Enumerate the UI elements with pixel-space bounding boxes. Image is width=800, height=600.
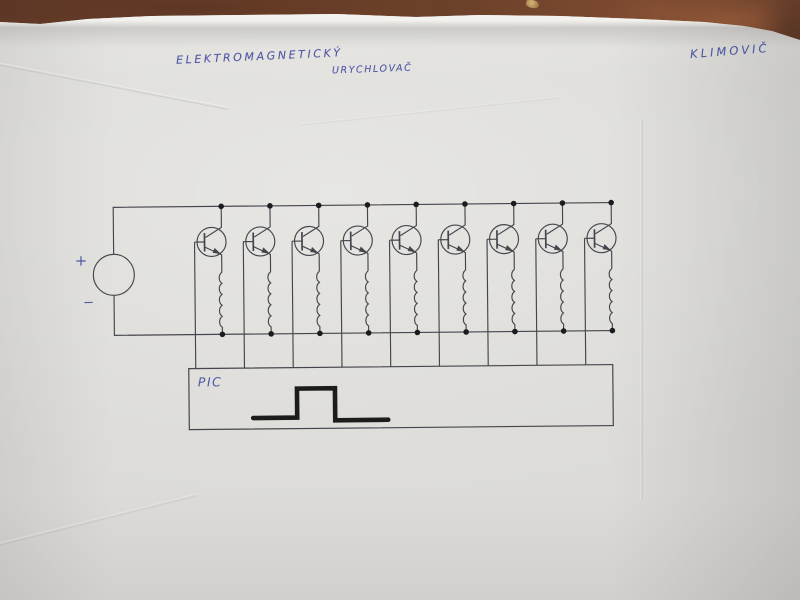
coil-symbol xyxy=(317,271,320,333)
base-drive-wire xyxy=(487,239,488,365)
coil-symbol xyxy=(463,270,466,332)
coil-symbol xyxy=(414,270,417,332)
junction-dot xyxy=(366,330,372,336)
transistor-stage xyxy=(243,203,276,368)
transistor-stage xyxy=(340,202,373,367)
junction-dot xyxy=(220,331,226,337)
plus-label: + xyxy=(75,252,88,270)
junction-dot xyxy=(268,331,274,337)
coil-symbol xyxy=(268,272,271,334)
junction-dot xyxy=(317,331,323,337)
circuit-schematic: + − PIC xyxy=(0,0,800,600)
junction-dot xyxy=(512,329,518,335)
collector-wire xyxy=(205,206,221,237)
emitter-wire xyxy=(448,244,465,270)
emitter-wire xyxy=(351,245,368,271)
junction-dot xyxy=(561,328,567,334)
emitter-arrow xyxy=(603,244,612,250)
junction-dot xyxy=(365,202,371,208)
stages xyxy=(194,200,617,369)
emitter-arrow xyxy=(213,248,222,254)
emitter-wire xyxy=(497,244,514,270)
junction-dot xyxy=(462,201,468,207)
photo-of-schematic: ELEKTROMAGNETICKÝ URYCHLOVAČ KLIMOVIČ + … xyxy=(0,0,800,600)
transistor-stage xyxy=(292,203,325,368)
emitter-arrow xyxy=(554,245,563,251)
transistor-stage xyxy=(389,202,422,367)
junction-dot xyxy=(608,200,614,206)
emitter-wire xyxy=(546,244,563,270)
junction-dot xyxy=(415,330,421,336)
junction-dot xyxy=(560,200,566,206)
emitter-arrow xyxy=(408,246,417,252)
emitter-wire xyxy=(400,245,417,271)
base-drive-wire xyxy=(390,240,391,366)
collector-wire xyxy=(449,204,465,235)
junction-dot xyxy=(267,203,273,209)
coil-symbol xyxy=(365,271,368,333)
collector-wire xyxy=(546,203,562,234)
paper-sheet: ELEKTROMAGNETICKÝ URYCHLOVAČ KLIMOVIČ + … xyxy=(0,0,800,600)
collector-wire xyxy=(254,206,270,237)
base-drive-wire xyxy=(438,240,439,366)
voltage-source xyxy=(93,254,134,295)
emitter-arrow xyxy=(456,245,465,251)
base-drive-wire xyxy=(536,239,537,365)
junction-dot xyxy=(316,203,322,209)
junction-dot xyxy=(463,329,469,335)
coil-symbol xyxy=(219,272,222,334)
emitter-wire xyxy=(253,246,270,272)
bottom-rail xyxy=(114,291,612,336)
emitter-arrow xyxy=(261,247,270,253)
transistor-stage xyxy=(535,200,568,365)
collector-wire xyxy=(595,203,611,234)
collector-wire xyxy=(351,205,367,236)
pulse-waveform xyxy=(253,388,388,421)
collector-wire xyxy=(303,205,319,236)
base-drive-wire xyxy=(341,241,342,367)
junction-dot xyxy=(413,202,419,208)
base-drive-wire xyxy=(292,241,293,367)
collector-wire xyxy=(400,204,416,235)
minus-label: − xyxy=(83,296,94,311)
emitter-wire xyxy=(205,247,222,273)
pic-label: PIC xyxy=(198,374,223,389)
emitter-arrow xyxy=(310,247,319,253)
collector-wire xyxy=(498,204,514,235)
junction-dot xyxy=(610,328,616,334)
base-drive-wire xyxy=(585,238,586,364)
emitter-wire xyxy=(595,243,612,269)
coil-symbol xyxy=(512,270,515,332)
transistor-stage xyxy=(487,201,520,366)
emitter-wire xyxy=(302,246,319,272)
emitter-arrow xyxy=(505,245,514,251)
transistor-stage xyxy=(438,201,471,366)
transistor-stage xyxy=(194,203,227,368)
base-drive-wire xyxy=(243,242,244,368)
transistor-stage xyxy=(584,200,617,365)
coil-symbol xyxy=(609,269,612,331)
top-rail xyxy=(113,203,611,255)
junction-dot xyxy=(511,201,517,207)
emitter-arrow xyxy=(359,246,368,252)
junction-dot xyxy=(218,204,224,210)
base-drive-wire xyxy=(195,242,196,368)
coil-symbol xyxy=(560,269,563,331)
